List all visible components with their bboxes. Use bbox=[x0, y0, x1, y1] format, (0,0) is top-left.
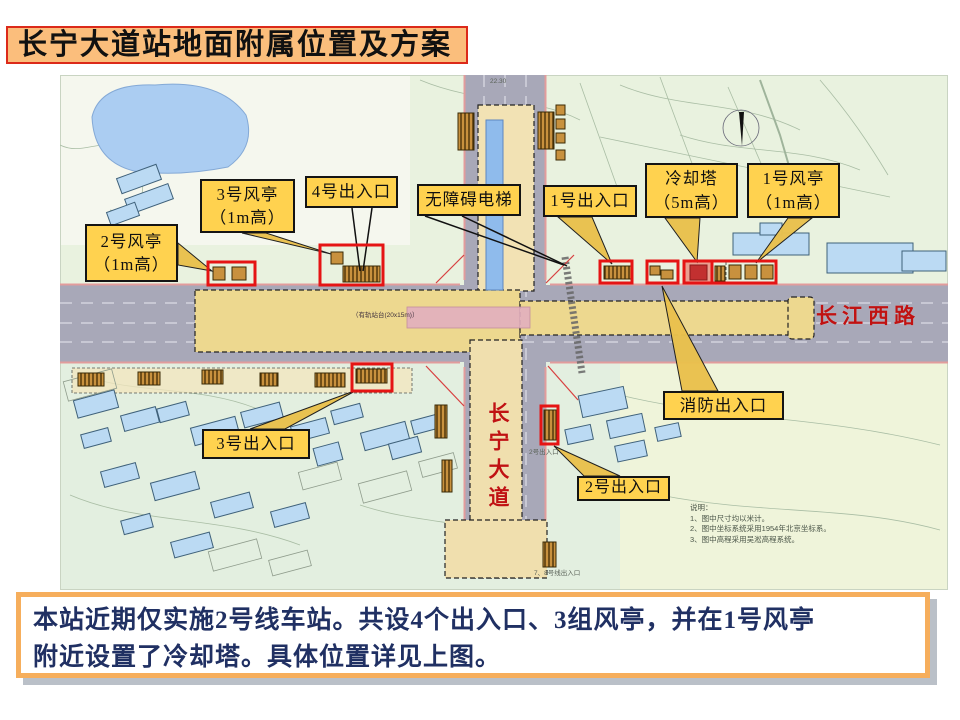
slide: 长宁大道站地面附属位置及方案 bbox=[0, 0, 960, 720]
callout-fire-exit: 消防出入口 bbox=[663, 391, 784, 420]
summary-line1: 本站近期仅实施2号线车站。共设4个出入口、3组风亭，并在1号风亭 bbox=[33, 602, 913, 639]
callout-elevator: 无障碍电梯 bbox=[417, 184, 521, 216]
callout-exit2-line1: 2号出入口 bbox=[579, 477, 668, 500]
callout-exit4: 4号出入口 bbox=[305, 176, 398, 208]
callout-fengting3: 3号风亭 （1m高） bbox=[200, 179, 295, 233]
micro-label-line78-exit: 7、8号线出入口 bbox=[534, 567, 580, 577]
road-name-changjiang-west-road: 长江西路 bbox=[816, 300, 920, 330]
callout-fengting1: 1号风亭 （1m高） bbox=[747, 163, 840, 218]
callout-exit4-line1: 4号出入口 bbox=[307, 180, 396, 203]
summary-text-box: 本站近期仅实施2号线车站。共设4个出入口、3组风亭，并在1号风亭 附近设置了冷却… bbox=[16, 592, 930, 678]
summary-line2: 附近设置了冷却塔。具体位置详见上图。 bbox=[33, 639, 913, 676]
micro-label-exit2: 2号出入口 bbox=[529, 446, 559, 456]
map-notes-line2: 2、图中坐标系统采用1954年北京坐标系。 bbox=[690, 524, 890, 535]
pond bbox=[92, 84, 249, 173]
page-title: 长宁大道站地面附属位置及方案 bbox=[6, 26, 468, 64]
map-notes-heading: 说明： bbox=[690, 503, 890, 514]
callout-exit2: 2号出入口 bbox=[577, 476, 670, 501]
map-notes-line3: 3、图中高程采用吴淞高程系统。 bbox=[690, 535, 890, 546]
callout-exit1: 1号出入口 bbox=[543, 185, 637, 217]
callout-fengting2: 2号风亭 （1m高） bbox=[85, 224, 178, 282]
callout-fengting1-line2: （1m高） bbox=[749, 191, 838, 214]
callout-fire-line1: 消防出入口 bbox=[665, 394, 782, 417]
map-notes-line1: 1、图中尺寸均以米计。 bbox=[690, 514, 890, 525]
callout-fengting1-line1: 1号风亭 bbox=[749, 167, 838, 190]
callout-fengting2-line1: 2号风亭 bbox=[87, 230, 176, 253]
callout-exit3-line1: 3号出入口 bbox=[204, 432, 308, 455]
callout-cooling-tower: 冷却塔 （5m高） bbox=[645, 163, 738, 218]
callout-cooling-line1: 冷却塔 bbox=[647, 167, 736, 190]
cooling-tower-marker bbox=[684, 261, 712, 283]
map-notes: 说明： 1、图中尺寸均以米计。 2、图中坐标系统采用1954年北京坐标系。 3、… bbox=[690, 503, 890, 545]
callout-elevator-line1: 无障碍电梯 bbox=[419, 188, 519, 211]
road-name-changning-avenue: 长宁大道 bbox=[483, 402, 513, 514]
callout-fengting3-line1: 3号风亭 bbox=[202, 183, 293, 206]
callout-cooling-line2: （5m高） bbox=[647, 191, 736, 214]
callout-exit3: 3号出入口 bbox=[202, 429, 310, 459]
tram-platform-label: （有轨站台(20x15m)） bbox=[352, 309, 472, 319]
callout-fengting3-line2: （1m高） bbox=[202, 206, 293, 229]
micro-label-dimension: 22.30 bbox=[490, 78, 506, 85]
callout-fengting2-line2: （1m高） bbox=[87, 253, 176, 276]
callout-exit1-line1: 1号出入口 bbox=[545, 189, 635, 212]
